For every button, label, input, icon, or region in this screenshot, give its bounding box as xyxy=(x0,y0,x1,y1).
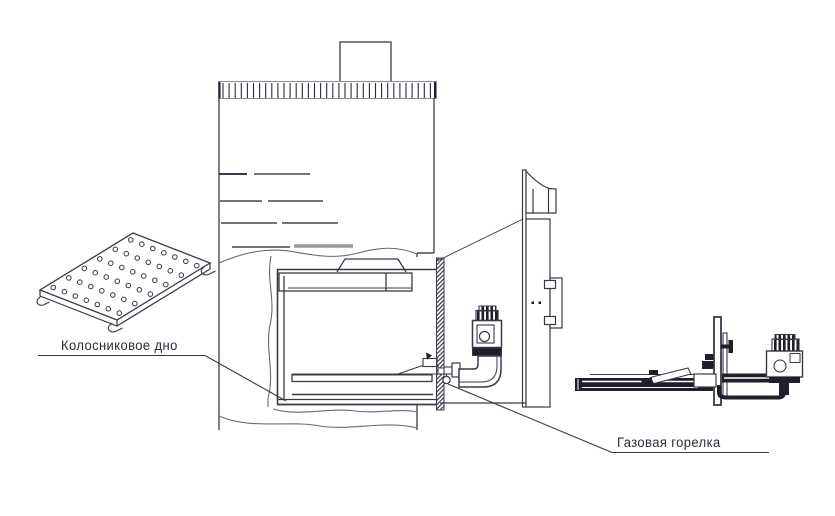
grate-leader-line xyxy=(205,356,286,402)
valve-collar xyxy=(473,348,502,356)
detail-valve-knob xyxy=(772,339,799,351)
detail-u-bend xyxy=(719,385,784,398)
valve-knob xyxy=(476,311,498,321)
chimney xyxy=(340,42,391,82)
break-lines xyxy=(219,248,417,428)
detail-pipe-union xyxy=(694,374,716,387)
burner-label: Газовая горелка xyxy=(617,435,721,451)
firebox xyxy=(277,259,438,405)
grate-surface xyxy=(40,233,210,320)
technical-diagram: Колосниковое дно Газовая горелка xyxy=(0,0,835,516)
ribbed-collar xyxy=(219,82,437,99)
gas-valve-assembly xyxy=(438,306,502,387)
water-level-marks xyxy=(219,174,353,247)
explode-line xyxy=(437,219,523,261)
detail-gas-valve xyxy=(767,335,803,384)
burner-detail-view xyxy=(575,317,803,405)
grate-plate xyxy=(37,233,216,332)
baffle-band xyxy=(279,273,412,291)
top-flange xyxy=(526,171,556,213)
burner-tube xyxy=(292,353,438,382)
mounting-screw xyxy=(443,376,450,383)
grate-label: Колосниковое дно xyxy=(61,338,178,354)
gasket-strip xyxy=(437,258,451,410)
panel-plate xyxy=(526,219,550,407)
